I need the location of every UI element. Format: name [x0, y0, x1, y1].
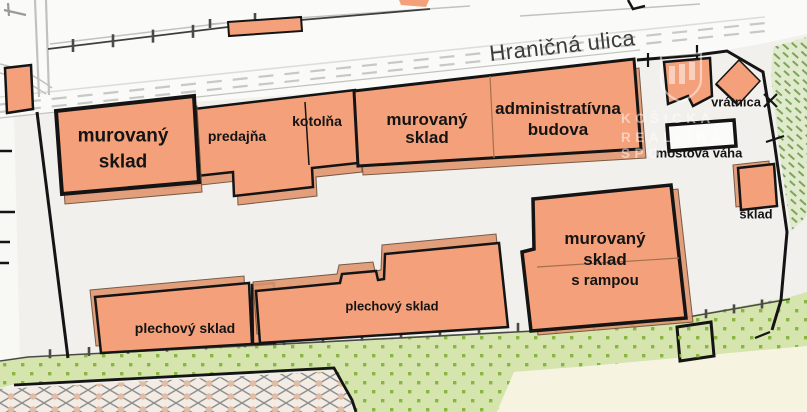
label-kotolna: kotolňa [292, 113, 342, 129]
label-mostova-vaha: mostová váha [656, 146, 743, 161]
building-fragment-northwest [5, 65, 33, 113]
label-admin-1: administratívna [495, 99, 621, 118]
label-sklad-rampa-2: sklad [583, 250, 626, 269]
label-murovany-sklad-mid-2: sklad [405, 128, 448, 147]
label-vratnica: vrátnica [711, 95, 762, 110]
building-murovany-sklad-left [56, 96, 202, 204]
map-canvas: murovaný sklad predajňa kotolňa murovaný… [0, 0, 807, 412]
building-plechovy-sklad-1 [90, 276, 275, 353]
watermark-line-2: REALITNÁ [621, 130, 725, 145]
watermark-line-3: SPO [621, 146, 663, 161]
label-admin-2: budova [528, 120, 589, 139]
label-plechovy-sklad-1: plechový sklad [135, 320, 235, 336]
label-predajna: predajňa [208, 128, 267, 144]
label-sklad-rampa-3: s rampou [571, 272, 639, 289]
label-sklad-rampa-1: murovaný [564, 229, 646, 248]
label-murovany-sklad-mid-1: murovaný [386, 110, 468, 129]
green-square-structure [677, 322, 714, 361]
building-sklad-small [733, 161, 777, 210]
label-plechovy-sklad-2: plechový sklad [345, 299, 438, 314]
label-murovany-sklad-left-2: sklad [99, 152, 148, 173]
site-plan-map: murovaný sklad predajňa kotolňa murovaný… [0, 0, 807, 412]
watermark-line-1: KOŠICKÁ [621, 111, 715, 126]
label-sklad-small: sklad [739, 207, 772, 222]
label-murovany-sklad-left-1: murovaný [78, 126, 169, 147]
